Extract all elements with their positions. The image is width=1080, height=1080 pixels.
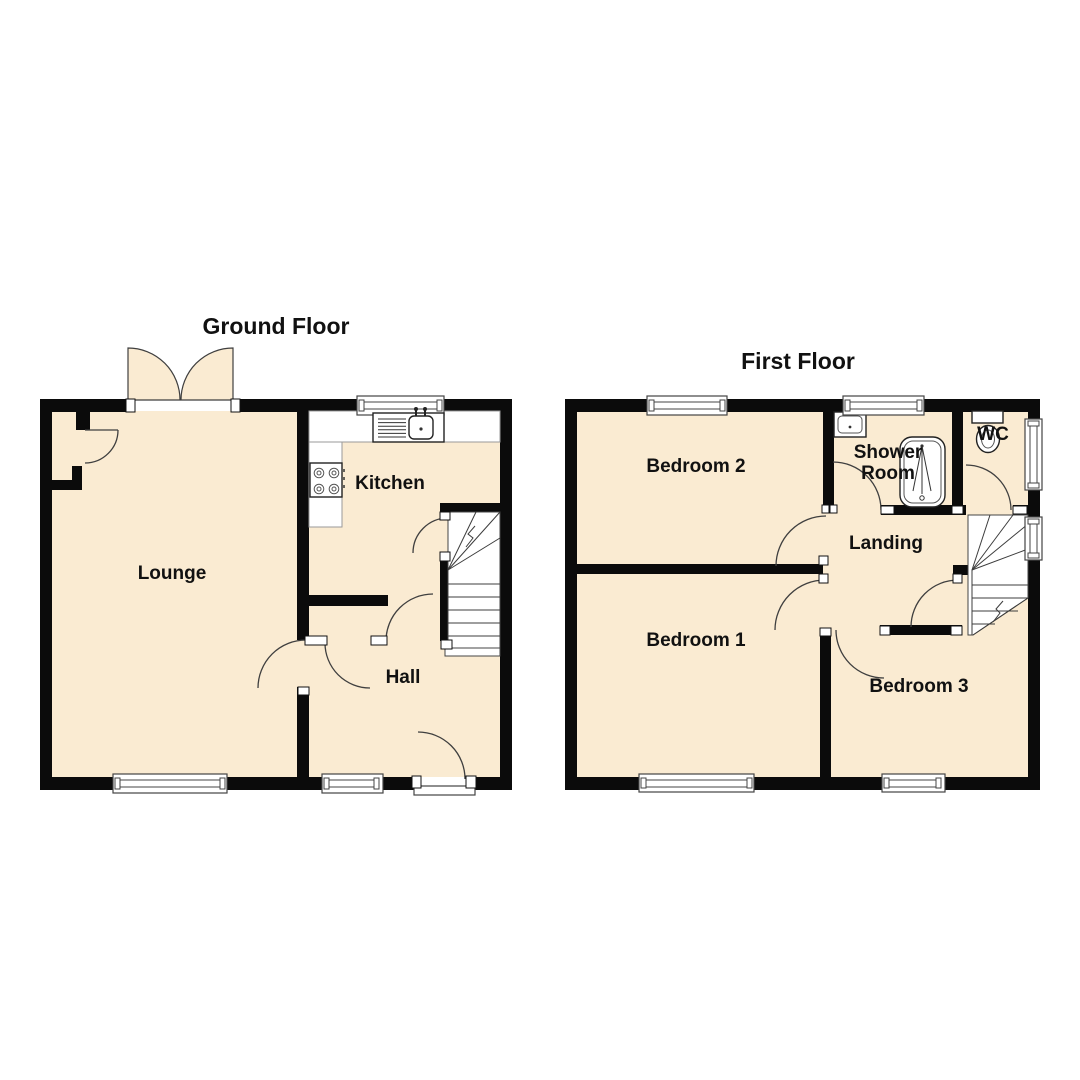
shower-room-label-line2: Room [861,463,915,484]
shower-room-window [843,396,924,415]
first-floor-title: First Floor [741,348,855,374]
first-floor-plan: First Floor [565,348,1042,792]
lounge-window [113,774,227,793]
wc-window [1025,419,1042,490]
patio-door-right-leaf [181,348,233,400]
hall-window [322,774,383,793]
patio-door-left-leaf [128,348,180,400]
lounge-label: Lounge [138,563,207,584]
floorplan-canvas: Ground Floor [0,0,1080,1080]
bedroom2-label: Bedroom 2 [646,456,745,477]
landing-label: Landing [849,533,923,554]
ground-stairs [445,512,500,656]
bedroom2-window [647,396,727,415]
ground-floor-plan: Ground Floor [40,313,512,795]
shower-room-label-line1: Shower [854,442,923,463]
stairs-window [1025,517,1042,560]
kitchen-window [357,396,444,415]
bedroom1-label: Bedroom 1 [646,630,746,651]
kitchen-label: Kitchen [355,473,425,494]
bedroom3-label: Bedroom 3 [869,676,968,697]
bedroom1-window [639,774,754,792]
wc-label: WC [977,424,1009,445]
bedroom3-window [882,774,945,792]
ground-floor-title: Ground Floor [203,313,350,339]
hob-icon [310,463,344,497]
hall-label: Hall [386,667,421,688]
